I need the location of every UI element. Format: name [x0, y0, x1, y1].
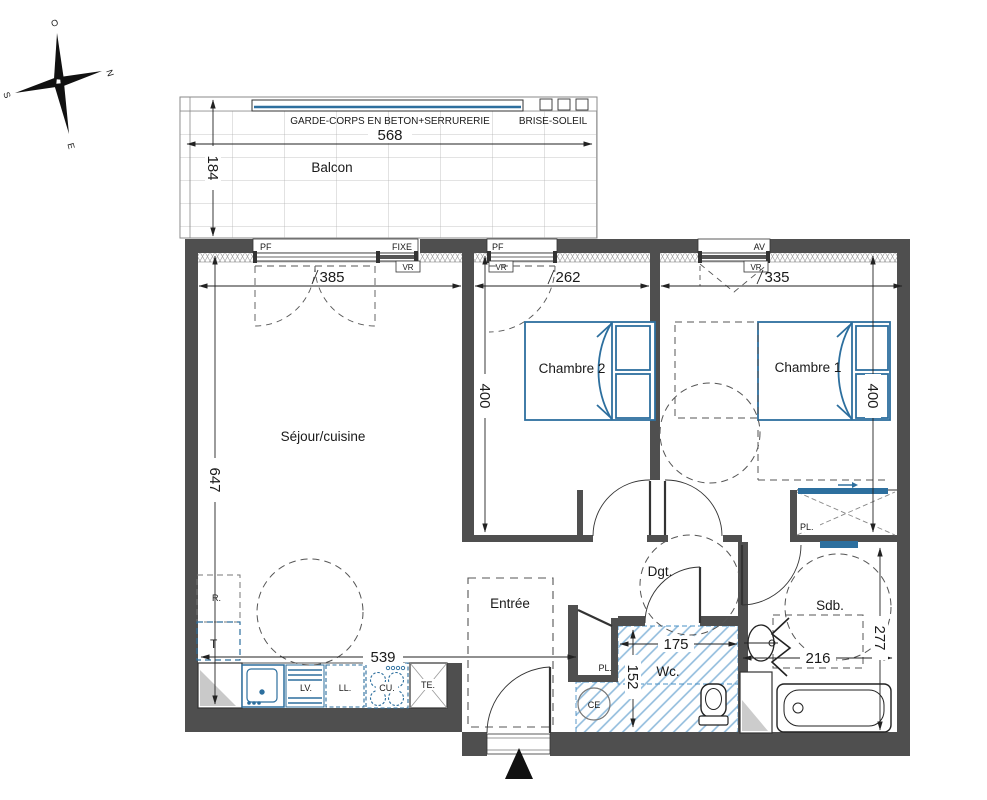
dim-living-height: 647: [206, 467, 223, 492]
wall-closet-hall-left: [790, 490, 797, 542]
wall-entry-closet-right: [611, 618, 618, 682]
brise-soleil-slats: [540, 99, 588, 110]
balcony-railing: [252, 100, 523, 111]
wall-stub-bed2: [577, 490, 583, 535]
wall-living-bed2: [462, 253, 474, 540]
compass-west-label: O: [50, 17, 60, 29]
railing-label: GARDE-CORPS EN BETON+SERRURERIE: [290, 116, 490, 127]
kitchen-cooktop: CU.: [366, 663, 408, 708]
dim-wc-width: 175: [663, 636, 688, 653]
wall-wc-north-1: [618, 616, 645, 626]
bed2-label: Chambre 2: [539, 361, 606, 376]
wall-entry-closet-left: [568, 605, 578, 682]
wall-entry-closet-bottom: [568, 675, 618, 682]
window-bed2-pf-label: PF: [492, 242, 504, 252]
dishwasher-label: LV.: [300, 683, 312, 693]
balcony-label: Balcon: [311, 160, 352, 175]
balcony-depth-value: 184: [204, 155, 221, 180]
compass-west-spike: [54, 33, 64, 80]
wall-between-doors: [647, 535, 668, 542]
bath-radiator: [820, 541, 858, 548]
bed1-label: Chambre 1: [775, 360, 842, 375]
wall-bottom-right: [550, 732, 910, 756]
balcony-width-value: 568: [377, 127, 402, 144]
hall-closet-label: PL.: [800, 522, 814, 532]
wall-bottom-kitchen: [185, 708, 462, 732]
wall-bed2-south: [462, 535, 593, 542]
compass-east-label: E: [65, 142, 76, 150]
entry-closet-label: PL.: [598, 663, 612, 673]
dim-bed1-depth: 400: [864, 383, 881, 408]
kitchen-washer: LL.: [326, 665, 364, 707]
compass-north-spike: [60, 71, 102, 87]
compass-rose: O N S E: [1, 17, 115, 150]
table-label: T: [210, 637, 218, 651]
entry-label: Entrée: [490, 596, 530, 611]
elec-panel-label: TE.: [421, 680, 435, 690]
window-living-pf-label: PF: [260, 242, 272, 252]
wall-left: [185, 253, 198, 732]
wall-top-2: [420, 239, 487, 253]
dim-living-window: 385: [319, 269, 344, 286]
hall-label: Dgt.: [648, 564, 673, 579]
window-living-vr-label: VR: [402, 263, 413, 272]
bath-duct: [740, 672, 772, 733]
compass-south-spike: [15, 77, 57, 93]
dim-bed2-depth: 400: [476, 383, 493, 408]
compass-north-label: N: [104, 68, 116, 77]
floor-plan-page: O N S E GARDE-CORPS EN BETON+SERRURERIE …: [0, 0, 987, 800]
compass-east-spike: [54, 83, 69, 134]
washer-label: LL.: [339, 683, 352, 693]
dim-bath-width: 216: [805, 650, 830, 667]
cooktop-label: CU.: [379, 683, 395, 693]
wc-label: Wc.: [656, 664, 679, 679]
fridge-label: R.: [212, 593, 221, 603]
wall-wc-north-2: [700, 616, 738, 626]
wall-top-3: [557, 239, 698, 253]
dim-bed1-window: 335: [764, 269, 789, 286]
dim-bed2-window: 262: [555, 269, 580, 286]
balcony: GARDE-CORPS EN BETON+SERRURERIE BRISE-SO…: [180, 97, 597, 238]
water-heater-label: CE: [588, 700, 601, 710]
wall-kitchen-stub: [447, 663, 462, 708]
bathtub: [777, 684, 891, 732]
window-living-fixe-label: FIXE: [392, 242, 412, 252]
wall-top-1: [185, 239, 253, 253]
wall-bottom-left-of-door: [462, 732, 487, 756]
kitchen-sink: [242, 665, 284, 707]
wall-hall-south-1: [723, 535, 742, 542]
wall-top-4: [770, 239, 910, 253]
sunshade-label: BRISE-SOLEIL: [519, 116, 588, 127]
living-label: Séjour/cuisine: [281, 429, 366, 444]
floor-plan-drawing: O N S E GARDE-CORPS EN BETON+SERRURERIE …: [0, 0, 987, 800]
window-bed1-av-label: AV: [754, 242, 765, 252]
kitchen-dishwasher: LV.: [286, 665, 324, 707]
compass-south-label: S: [1, 90, 12, 99]
wall-bath-north: [795, 535, 897, 542]
toilet: [699, 684, 728, 725]
dim-wc-depth: 152: [624, 664, 641, 689]
wall-right: [897, 253, 910, 756]
hall-radiator: [798, 488, 888, 494]
kitchen: LV. LL. CU. TE.: [198, 663, 447, 708]
bath-label: Sdb.: [816, 598, 844, 613]
kitchen-elec-duct: TE.: [410, 663, 447, 708]
dim-living-width: 539: [370, 649, 395, 666]
dim-bath-depth: 277: [871, 625, 888, 650]
window-bed2-vr-label: VR: [495, 263, 506, 272]
